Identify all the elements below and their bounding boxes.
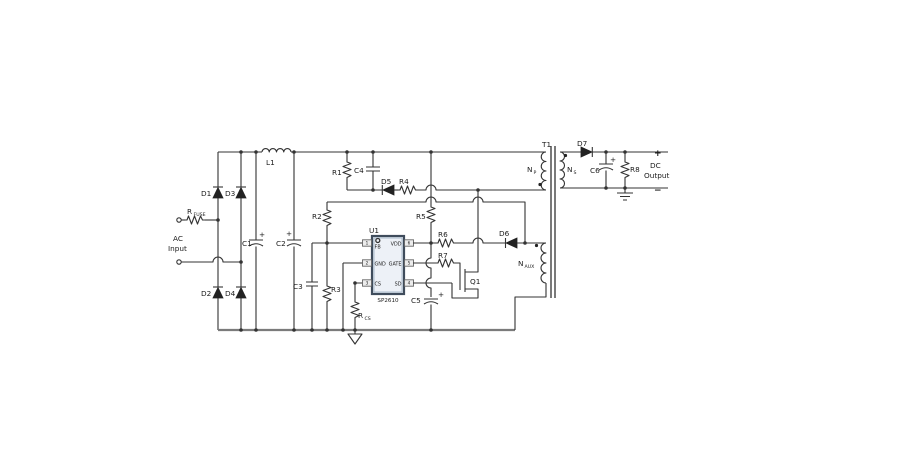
pin-label-vdd: VDD xyxy=(391,242,402,248)
label-d3: D3 xyxy=(225,189,236,198)
label-rcs: R xyxy=(358,311,363,320)
label-u1: U1 xyxy=(369,226,379,235)
ac-terminal-top xyxy=(177,218,181,222)
label-ns: N xyxy=(567,165,572,174)
pin-label-fb: FB xyxy=(375,245,382,251)
output-minus-label: − xyxy=(654,186,662,196)
label-r4: R4 xyxy=(399,177,409,186)
flyback-converter-schematic: R FUSE AC Input D1 D3 D2 D4 L1 C1 + C2 + xyxy=(0,0,900,453)
label-rcs-sub: CS xyxy=(365,316,371,322)
label-rfuse: R xyxy=(187,207,192,216)
label-ac: AC xyxy=(173,234,183,243)
pin-number-6: 6 xyxy=(408,241,411,246)
naux-phase-dot xyxy=(535,244,538,247)
c5-plus: + xyxy=(438,290,444,299)
label-r6: R6 xyxy=(438,230,448,239)
label-r3: R3 xyxy=(331,285,341,294)
pin-label-cs: CS xyxy=(375,282,382,288)
background xyxy=(0,0,900,453)
label-d7: D7 xyxy=(577,139,588,148)
label-c3: C3 xyxy=(293,282,303,291)
pin-label-gate: GATE xyxy=(389,262,402,268)
label-d1: D1 xyxy=(201,189,211,198)
label-c4: C4 xyxy=(354,166,364,175)
output-dc-label: DC xyxy=(650,161,661,170)
ns-phase-dot xyxy=(564,154,567,157)
pin-label-sd: SD xyxy=(395,282,402,288)
label-r7: R7 xyxy=(438,251,448,260)
output-output-label: Output xyxy=(644,171,669,180)
label-naux: N xyxy=(518,259,523,268)
ac-terminal-bottom xyxy=(177,260,181,264)
pin-number-1: 1 xyxy=(366,241,369,246)
c1-plus: + xyxy=(259,230,265,239)
schematic-canvas: R FUSE AC Input D1 D3 D2 D4 L1 C1 + C2 + xyxy=(0,0,900,453)
label-np-sub: P xyxy=(534,170,537,176)
label-r8: R8 xyxy=(630,165,640,174)
output-plus-label: + xyxy=(654,149,662,159)
pin-number-2: 2 xyxy=(366,261,369,266)
c6-plus: + xyxy=(610,155,616,164)
label-c1: C1 xyxy=(242,239,252,248)
label-naux-sub: AUX xyxy=(525,264,536,270)
label-q1: Q1 xyxy=(470,277,480,286)
label-l1: L1 xyxy=(266,158,275,167)
label-c5: C5 xyxy=(411,296,421,305)
label-c6: C6 xyxy=(590,166,600,175)
c2-plus: + xyxy=(286,229,292,238)
pin-number-5: 5 xyxy=(408,261,411,266)
label-c2: C2 xyxy=(276,239,286,248)
label-d5: D5 xyxy=(381,177,391,186)
pin-label-gnd: GND xyxy=(375,262,386,268)
label-t1: T1 xyxy=(541,140,551,149)
label-np: N xyxy=(527,165,532,174)
label-part-number: SP2610 xyxy=(377,298,399,304)
label-ns-sub: S xyxy=(574,170,577,176)
label-r1: R1 xyxy=(332,168,342,177)
label-d2: D2 xyxy=(201,289,211,298)
label-d4: D4 xyxy=(225,289,236,298)
label-d6: D6 xyxy=(499,229,510,238)
label-r2: R2 xyxy=(312,212,322,221)
label-r5: R5 xyxy=(416,212,426,221)
label-rfuse-sub: FUSE xyxy=(194,212,206,218)
pin-number-3: 3 xyxy=(366,281,369,286)
np-phase-dot xyxy=(538,183,541,186)
pin-number-4: 4 xyxy=(408,281,411,286)
label-input: Input xyxy=(168,244,187,253)
